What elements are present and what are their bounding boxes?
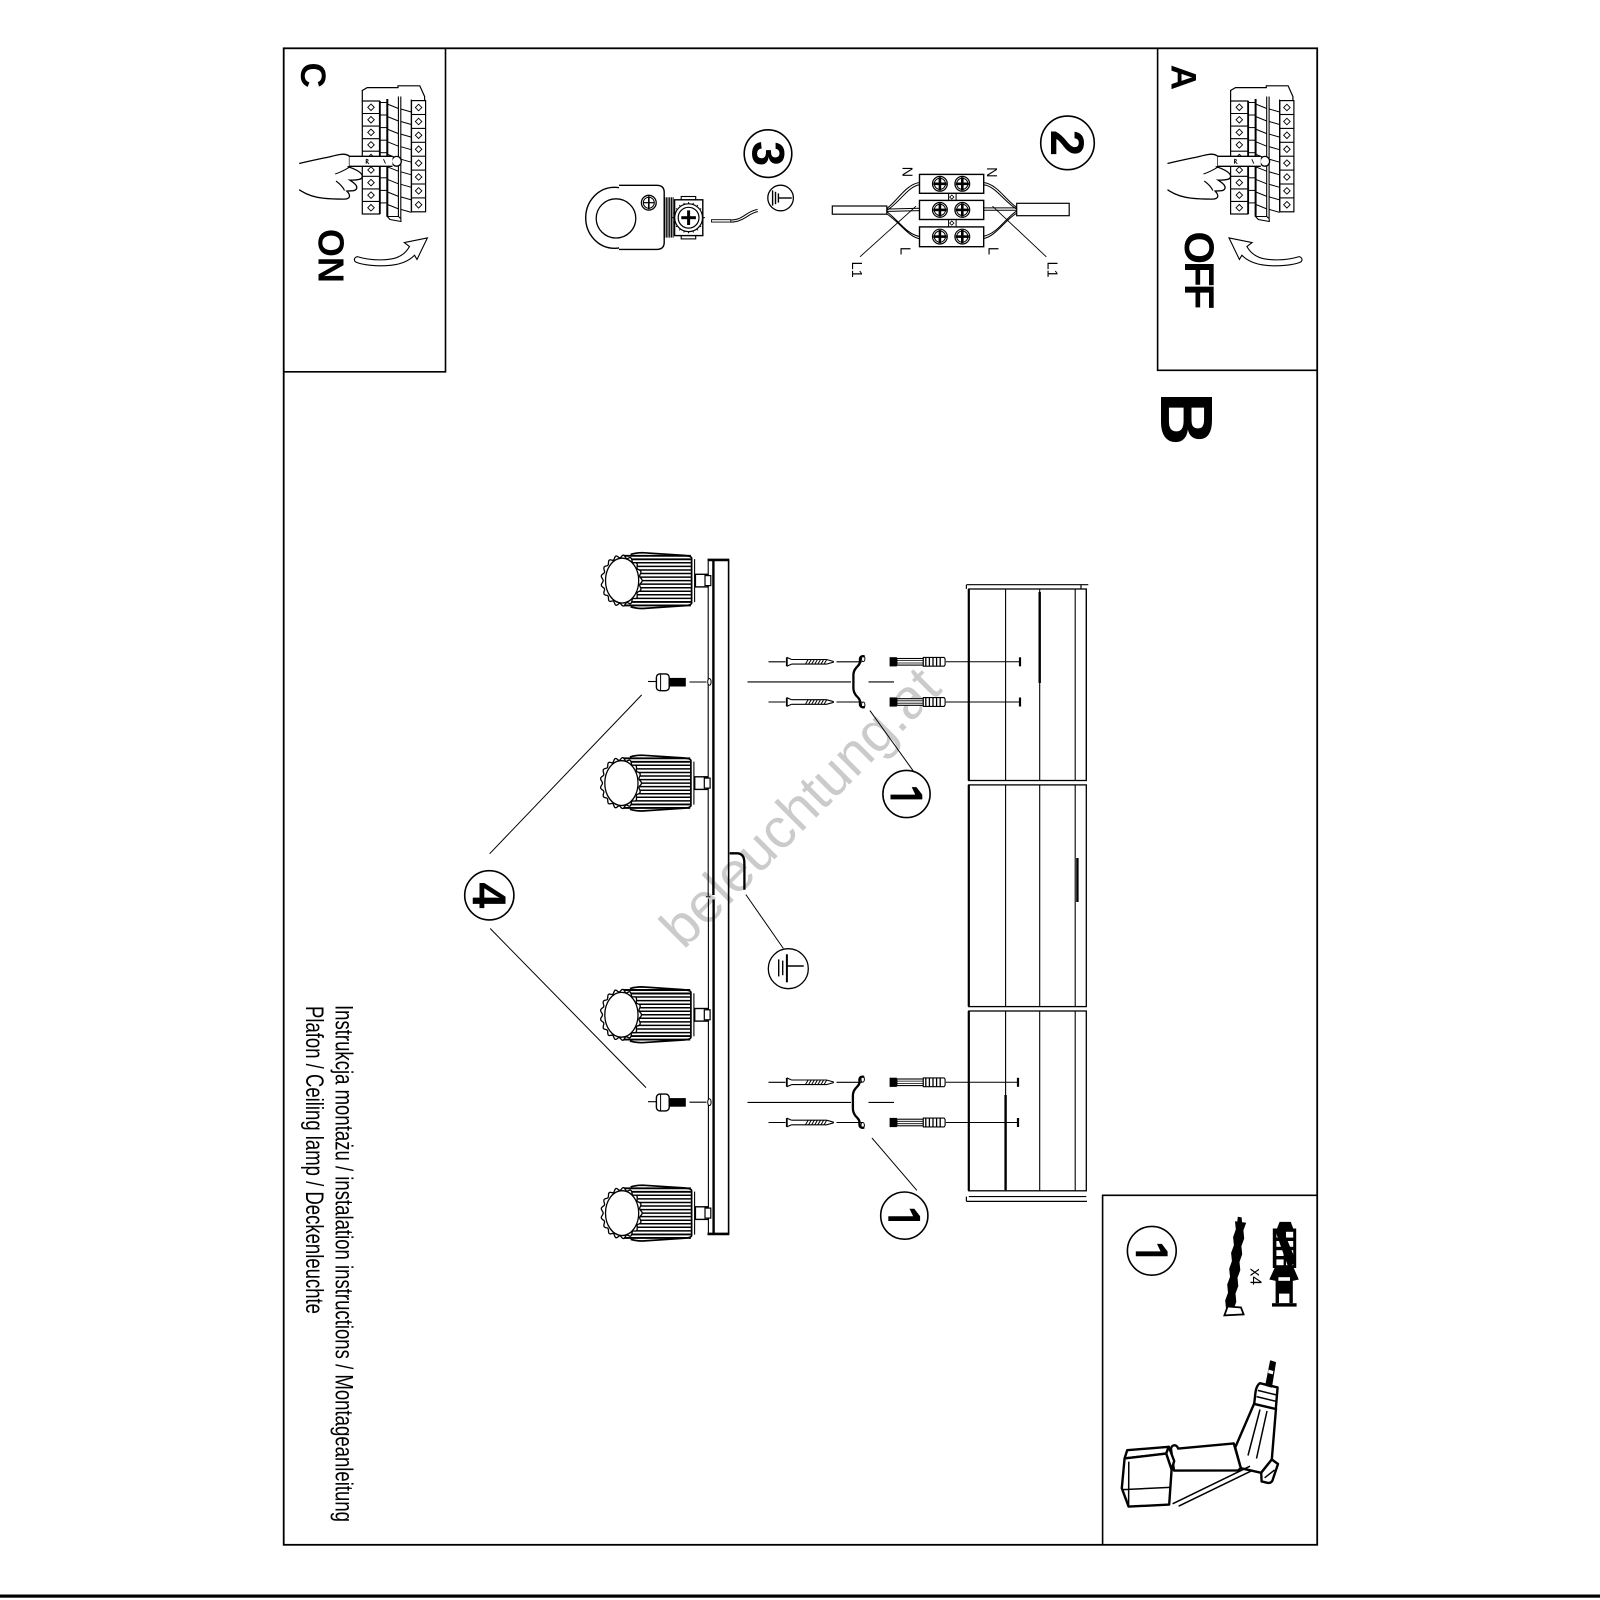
svg-text:A: A (1163, 65, 1202, 90)
svg-text:ON: ON (310, 229, 351, 283)
svg-text:L: L (896, 247, 912, 255)
svg-text:3: 3 (742, 141, 793, 166)
svg-text:L: L (985, 247, 1001, 255)
svg-text:C: C (293, 63, 332, 88)
svg-text:Plafon / Ceiling lamp / Decken: Plafon / Ceiling lamp / Deckenleuchte (300, 1006, 328, 1314)
svg-text:N: N (899, 167, 915, 177)
svg-text:Instrukcja montażu / instalati: Instrukcja montażu / instalation instruc… (330, 1005, 358, 1522)
svg-text:OFF: OFF (1176, 231, 1223, 308)
svg-text:L1: L1 (1044, 262, 1060, 278)
svg-text:4: 4 (463, 882, 516, 908)
svg-text:x4: x4 (1247, 1268, 1264, 1285)
svg-text:L1: L1 (848, 262, 864, 278)
svg-text:2: 2 (1041, 130, 1094, 156)
svg-text:B: B (1145, 392, 1228, 445)
svg-text:N: N (983, 167, 999, 177)
